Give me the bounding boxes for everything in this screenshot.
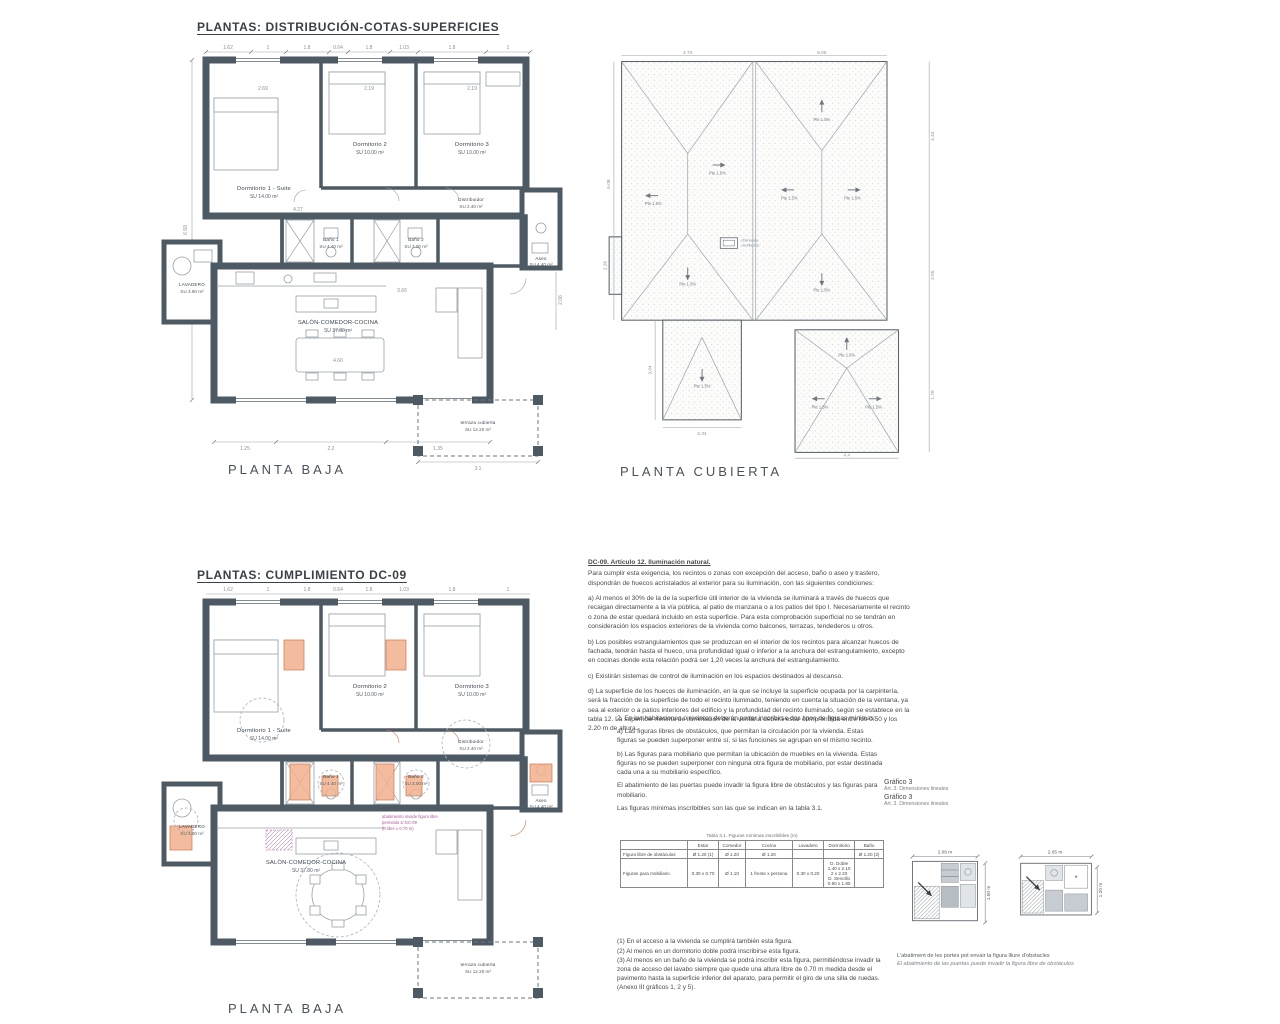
svg-text:3.1: 3.1 bbox=[475, 466, 482, 472]
label-lavadero: LAVADERO bbox=[179, 282, 205, 287]
svg-text:Pte 1.5%: Pte 1.5% bbox=[781, 195, 798, 200]
bath-diagram-captions: L'abatiment de les portes pot envair la … bbox=[897, 952, 1115, 969]
svg-text:1: 1 bbox=[267, 45, 270, 51]
svg-text:Pte 1.5%: Pte 1.5% bbox=[709, 171, 726, 176]
svg-text:SU 10.00 m²: SU 10.00 m² bbox=[458, 692, 486, 698]
svg-text:6.05: 6.05 bbox=[817, 50, 827, 56]
roof-plan: Pte 1.5% Pte 1.5% Pte 1.5% Pte 1.5% Pte … bbox=[600, 50, 945, 462]
footnote-1: (1) En el acceso a la vivienda se cumpli… bbox=[617, 938, 893, 947]
table-footnotes: (1) En el acceso a la vivienda se cumpli… bbox=[617, 938, 893, 994]
svg-text:1.25: 1.25 bbox=[240, 446, 250, 452]
svg-text:6.59: 6.59 bbox=[183, 225, 189, 235]
caption-castellano: El abatimiento de las puertas puede inva… bbox=[897, 960, 1115, 968]
footnote-2: (2) Al menos en un dormitorio doble podr… bbox=[617, 948, 893, 957]
svg-text:1.8: 1.8 bbox=[304, 45, 311, 51]
label-bano1: Baño 1 bbox=[323, 237, 339, 242]
svg-text:SU 10.00 m²: SU 10.00 m² bbox=[356, 692, 384, 698]
svg-text:chimenea: chimenea bbox=[741, 239, 758, 243]
svg-text:SU 4.40 m²: SU 4.40 m² bbox=[319, 244, 343, 249]
svg-text:2.19: 2.19 bbox=[467, 86, 477, 92]
svg-text:SALÓN-COMEDOR-COCINA: SALÓN-COMEDOR-COCINA bbox=[266, 859, 346, 866]
svg-text:2.06: 2.06 bbox=[558, 295, 564, 305]
svg-text:1.8: 1.8 bbox=[366, 45, 373, 51]
dc09-regulation-text: DC-09. Artículo 12. Iluminación natural.… bbox=[588, 558, 910, 740]
svg-text:Pte 1.5%: Pte 1.5% bbox=[814, 117, 831, 122]
svg-text:1.03: 1.03 bbox=[399, 587, 409, 593]
svg-text:2.69: 2.69 bbox=[258, 86, 268, 92]
svg-text:SU 37.80 m²: SU 37.80 m² bbox=[292, 868, 320, 874]
label-aseo: Aseo bbox=[535, 256, 547, 261]
table-row: Figuras para mobiliario 0.30 x 0.70 Ø 1.… bbox=[621, 859, 884, 888]
figuras-item-a: a) Las figuras libres de obstáculos, que… bbox=[617, 727, 885, 745]
tabla-3-1-wrap: Tabla 3.1. Figuras mínimas inscribibles … bbox=[620, 834, 884, 888]
terrace-outline bbox=[413, 937, 543, 998]
svg-text:SU 12.20 m²: SU 12.20 m² bbox=[465, 427, 491, 432]
grafico-3-sub-2: Art. 3. Dimensiones lineales bbox=[884, 801, 948, 807]
svg-text:5.34: 5.34 bbox=[697, 431, 707, 437]
grafico-3-label: Gráfico 3 bbox=[884, 779, 948, 786]
dc09-item-c: c) Existirán sistemas de control de ilum… bbox=[588, 672, 910, 681]
door-swing-hatch bbox=[1023, 881, 1044, 914]
svg-text:SU 4.40 m²: SU 4.40 m² bbox=[529, 262, 553, 267]
figuras-minimas-text: 2. En las habitaciones o recintos deberá… bbox=[617, 714, 885, 817]
dimension-chain-right: 2.06 bbox=[556, 272, 564, 330]
svg-text:2.2: 2.2 bbox=[328, 446, 335, 452]
label-bano2: Baño 2 bbox=[408, 237, 424, 242]
svg-text:1.35: 1.35 bbox=[433, 446, 443, 452]
roof-surfaces bbox=[609, 61, 898, 452]
svg-text:1.20 m: 1.20 m bbox=[1098, 883, 1104, 898]
table-row: Figura libre de obstáculos Ø 1.20 (1) Ø … bbox=[621, 850, 884, 859]
svg-text:1.62: 1.62 bbox=[223, 45, 233, 51]
tabla-title: Tabla 3.1. Figuras mínimas inscribibles … bbox=[620, 834, 884, 839]
svg-text:4.60: 4.60 bbox=[333, 358, 343, 364]
grafico-3-label-2: Gráfico 3 bbox=[884, 794, 948, 801]
footnote-anexo: (Anexo III gráficos 1, 2 y 5). bbox=[617, 984, 893, 993]
svg-text:Baño 2: Baño 2 bbox=[408, 774, 424, 779]
svg-text:SU 10.00 m²: SU 10.00 m² bbox=[458, 150, 486, 156]
svg-text:1: 1 bbox=[267, 587, 270, 593]
dimension-chain-top: 1.62 1 1.8 0.64 1.8 1.03 1.8 1 bbox=[204, 45, 532, 54]
svg-text:SU 2.40 m²: SU 2.40 m² bbox=[459, 746, 483, 751]
floor-plan-planta-baja: 1.62 1 1.8 0.64 1.8 1.03 1.8 1 6.59 1.25… bbox=[86, 38, 566, 478]
dimension-chain-left: 6.59 bbox=[183, 58, 194, 402]
svg-text:1.8: 1.8 bbox=[304, 587, 311, 593]
grafico-3-sub: Art. 3. Dimensiones lineales bbox=[884, 786, 948, 792]
svg-text:Pte 1.5%: Pte 1.5% bbox=[812, 404, 829, 409]
label-terraza: terraza cubierta bbox=[460, 420, 495, 425]
tabla-header-row: Estar Comedor Cocina Lavadero Dormitorio… bbox=[621, 841, 884, 850]
svg-text:Dormitorio 3: Dormitorio 3 bbox=[455, 684, 489, 690]
svg-text:4.74: 4.74 bbox=[683, 50, 693, 56]
svg-text:SU 3.80 m²: SU 3.80 m² bbox=[180, 289, 204, 294]
dc09-item-b: b) Los posibles estrangulamientos que se… bbox=[588, 638, 910, 666]
svg-text:3.66: 3.66 bbox=[397, 288, 407, 294]
svg-text:SU 3.00 m²: SU 3.00 m² bbox=[404, 781, 428, 786]
svg-text:SU 2.40 m²: SU 2.40 m² bbox=[459, 204, 483, 209]
svg-text:0.64: 0.64 bbox=[333, 45, 343, 51]
caption-planta-baja-top: PLANTA BAJA bbox=[228, 462, 346, 477]
label-dormitorio-2: Dormitorio 2 bbox=[353, 142, 387, 148]
svg-text:Dormitorio 1 - Suite: Dormitorio 1 - Suite bbox=[237, 728, 291, 734]
svg-text:SU 14.00 m²: SU 14.00 m² bbox=[250, 736, 278, 742]
svg-text:abatimiento invade figura libr: abatimiento invade figura libre bbox=[382, 814, 439, 819]
caption-planta-cubierta: PLANTA CUBIERTA bbox=[620, 464, 782, 479]
dc09-intro: Para cumplir esta exigencia, los recinto… bbox=[588, 569, 910, 588]
figuras-intro: 2. En las habitaciones o recintos deberá… bbox=[617, 714, 885, 723]
drawing-sheet: PLANTAS: DISTRIBUCIÓN-COTAS-SUPERFICIES … bbox=[0, 0, 1280, 1024]
svg-text:1: 1 bbox=[507, 587, 510, 593]
svg-text:2.26: 2.26 bbox=[602, 261, 608, 271]
svg-text:6.08: 6.08 bbox=[606, 179, 612, 189]
svg-text:4.44: 4.44 bbox=[930, 131, 936, 141]
svg-text:SU 3.00 m²: SU 3.00 m² bbox=[404, 244, 428, 249]
figuras-abatimiento: El abatimiento de las puertas puede inva… bbox=[617, 781, 885, 799]
svg-text:Pte 1.5%: Pte 1.5% bbox=[844, 195, 861, 200]
svg-text:Distribuidor: Distribuidor bbox=[458, 739, 484, 744]
dimension-chain-top: 1.62 1 1.8 0.64 1.8 1.03 1.8 1 bbox=[206, 587, 530, 594]
svg-text:1.8: 1.8 bbox=[449, 587, 456, 593]
caption-catalan: L'abatiment de les portes pot envair la … bbox=[897, 952, 1115, 960]
svg-text:Dormitorio 2: Dormitorio 2 bbox=[353, 684, 387, 690]
svg-text:0.64: 0.64 bbox=[333, 587, 343, 593]
svg-text:4.4: 4.4 bbox=[843, 452, 850, 458]
label-dormitorio-3: Dormitorio 3 bbox=[455, 142, 489, 148]
svg-text:SU 10.00 m²: SU 10.00 m² bbox=[356, 150, 384, 156]
svg-text:(h libre ≥ 0.70 m): (h libre ≥ 0.70 m) bbox=[382, 826, 414, 831]
grafico-labels: Gráfico 3 Art. 3. Dimensiones lineales G… bbox=[884, 779, 948, 809]
svg-text:2.19: 2.19 bbox=[364, 86, 374, 92]
label-dormitorio-1: Dormitorio 1 - Suite bbox=[237, 186, 291, 192]
svg-text:SU 37.80 m²: SU 37.80 m² bbox=[324, 328, 352, 334]
svg-text:SU 12.20 m²: SU 12.20 m² bbox=[465, 969, 491, 974]
figuras-item-b: b) Las figuras para mobiliario que permi… bbox=[617, 750, 885, 778]
svg-text:2.55: 2.55 bbox=[930, 270, 936, 280]
caption-planta-baja-bottom: PLANTA BAJA bbox=[228, 1001, 346, 1016]
dc09-item-a: a) Al menos el 30% de la de la superfici… bbox=[588, 594, 910, 631]
footnote-3: (3) Al menos en un baño de la vivienda s… bbox=[617, 957, 893, 983]
svg-text:2.06 m: 2.06 m bbox=[938, 850, 953, 856]
svg-text:SU 4.40 m²: SU 4.40 m² bbox=[529, 804, 553, 809]
svg-text:LAVADERO: LAVADERO bbox=[179, 824, 205, 829]
svg-text:2.65 m: 2.65 m bbox=[1048, 850, 1063, 856]
svg-text:1.03: 1.03 bbox=[399, 45, 409, 51]
bath-figure-diagrams: 2.06 m 1.50 m 2.65 m 1.20 m bbox=[897, 848, 1105, 936]
svg-text:1: 1 bbox=[507, 45, 510, 51]
bath-diagram-1: 2.06 m 1.50 m bbox=[897, 848, 993, 936]
svg-text:SU 14.00 m²: SU 14.00 m² bbox=[250, 194, 278, 200]
svg-text:terraza cubierta: terraza cubierta bbox=[460, 962, 495, 967]
section-title-distribucion: PLANTAS: DISTRIBUCIÓN-COTAS-SUPERFICIES bbox=[197, 20, 499, 34]
svg-text:Pte 1.5%: Pte 1.5% bbox=[865, 404, 882, 409]
svg-text:permitido s/ DC-09: permitido s/ DC-09 bbox=[382, 820, 418, 825]
svg-text:1.8: 1.8 bbox=[366, 587, 373, 593]
svg-text:ventilación: ventilación bbox=[741, 243, 759, 247]
svg-text:Pte 1.5%: Pte 1.5% bbox=[645, 201, 662, 206]
svg-text:1.50 m: 1.50 m bbox=[986, 886, 992, 901]
bath-diagram-2: 2.65 m 1.20 m bbox=[1009, 848, 1105, 936]
svg-text:Pte 1.5%: Pte 1.5% bbox=[694, 383, 711, 388]
svg-text:Pte 1.5%: Pte 1.5% bbox=[838, 353, 855, 358]
tabla-3-1: Estar Comedor Cocina Lavadero Dormitorio… bbox=[620, 840, 884, 888]
svg-text:SU 3.80 m²: SU 3.80 m² bbox=[180, 831, 204, 836]
floor-plan-cumplimiento-dc09: 1.62 1 1.8 0.64 1.8 1.03 1.8 1 bbox=[86, 580, 566, 1020]
dc09-heading: DC-09. Artículo 12. Iluminación natural. bbox=[588, 558, 910, 567]
svg-text:SU 4.40 m²: SU 4.40 m² bbox=[319, 781, 343, 786]
label-salon: SALÓN-COMEDOR-COCINA bbox=[298, 319, 378, 326]
svg-text:Aseo: Aseo bbox=[535, 798, 547, 803]
label-distribuidor: Distribuidor bbox=[458, 197, 484, 202]
svg-text:Baño 1: Baño 1 bbox=[323, 774, 339, 779]
svg-text:3.04: 3.04 bbox=[647, 365, 653, 375]
svg-text:Pte 1.5%: Pte 1.5% bbox=[679, 282, 696, 287]
svg-text:Pte 1.5%: Pte 1.5% bbox=[814, 287, 831, 292]
svg-text:1.8: 1.8 bbox=[449, 45, 456, 51]
figuras-tabla-ref: Las figuras mínimas inscribibles son las… bbox=[617, 804, 885, 813]
svg-text:1.62: 1.62 bbox=[223, 587, 233, 593]
svg-text:4.27: 4.27 bbox=[293, 207, 303, 213]
svg-text:1.78: 1.78 bbox=[930, 390, 936, 400]
